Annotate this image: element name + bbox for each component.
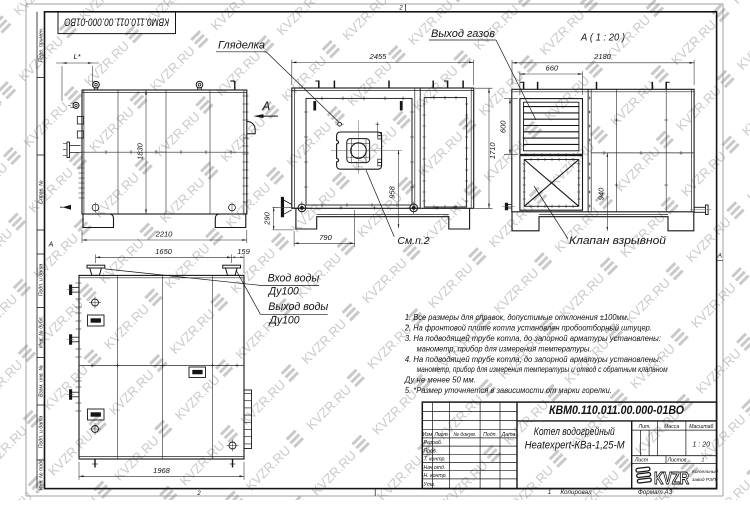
svg-text:600: 600 [498, 120, 507, 133]
svg-text:790: 790 [319, 233, 332, 242]
svg-text:Ду100: Ду100 [268, 314, 301, 326]
svg-text:КВМ0.110.011.00.000-01ВО: КВМ0.110.011.00.000-01ВО [64, 16, 169, 28]
svg-text:КВМ0.110.011.00.000-01ВО: КВМ0.110.011.00.000-01ВО [549, 404, 684, 417]
svg-text:Масштаб: Масштаб [689, 424, 714, 430]
svg-text:Подп. и дата: Подп. и дата [39, 416, 45, 449]
svg-text:2180: 2180 [593, 52, 612, 61]
svg-text:Справ. №: Справ. № [39, 180, 45, 204]
svg-text:Котельный: Котельный [692, 468, 718, 475]
svg-text:Пров.: Пров. [424, 448, 438, 454]
svg-text:L*: L* [73, 52, 81, 61]
svg-text:2455: 2455 [369, 52, 388, 61]
svg-text:958: 958 [388, 185, 397, 198]
svg-text:2: 2 [196, 491, 201, 497]
svg-text:5. *Размер уточняется в зависи: 5. *Размер уточняется в зависимости от м… [405, 386, 612, 395]
svg-text:940: 940 [596, 187, 605, 200]
svg-text:А: А [48, 242, 54, 249]
svg-text:Инв. № подл.: Инв. № подл. [39, 458, 45, 490]
svg-text:1650: 1650 [155, 247, 173, 256]
svg-text:4. На подводящей трубе котла,: 4. На подводящей трубе котла, до запорно… [405, 355, 661, 364]
svg-text:Лист: Лист [433, 432, 448, 438]
svg-text:Котел водогрейный: Котел водогрейный [534, 426, 615, 438]
svg-text:Утв.: Утв. [424, 482, 436, 488]
svg-text:1: 1 [548, 490, 551, 496]
svg-text:159: 159 [237, 247, 250, 256]
svg-text:Взам. инв. №: Взам. инв. № [39, 365, 45, 397]
svg-text:А: А [261, 101, 270, 113]
svg-text:1710: 1710 [488, 142, 497, 160]
svg-text:Формат А3: Формат А3 [638, 489, 673, 496]
svg-text:2: 2 [398, 6, 403, 12]
svg-text:А ( 1 : 20 ): А ( 1 : 20 ) [580, 33, 625, 44]
svg-text:Вход воды: Вход воды [268, 272, 320, 284]
svg-text:Выход газов: Выход газов [431, 28, 495, 40]
svg-text:Н. контр.: Н. контр. [424, 473, 447, 479]
svg-text:Нач.отд.: Нач.отд. [424, 465, 446, 471]
svg-text:Подп.: Подп. [483, 432, 497, 438]
svg-text:№ докум.: № докум. [453, 432, 476, 438]
svg-text:1830: 1830 [135, 142, 144, 160]
svg-text:Ду не менее 50 мм.: Ду не менее 50 мм. [404, 376, 476, 385]
svg-text:Ду100: Ду100 [267, 286, 300, 298]
svg-text:Листов: Листов [667, 458, 687, 464]
svg-text:Дата: Дата [501, 432, 516, 438]
svg-text:2. На фронтовой плите котла ус: 2. На фронтовой плите котла установлен п… [404, 324, 652, 333]
svg-text:Клапан взрывной: Клапан взрывной [569, 235, 666, 247]
svg-text:Т. контр.: Т. контр. [424, 457, 446, 463]
svg-text:1 : 20: 1 : 20 [693, 441, 711, 448]
svg-text:2210: 2210 [155, 229, 174, 238]
svg-text:А: А [717, 253, 722, 260]
svg-text:Разраб.: Разраб. [424, 440, 443, 446]
svg-text:Масса: Масса [664, 424, 679, 430]
svg-text:Инв. № дубл.: Инв. № дубл. [39, 316, 45, 348]
svg-text:3. На подводящей трубе котла,: 3. На подводящей трубе котла, до запорно… [405, 334, 661, 343]
svg-text:завод РЭП: завод РЭП [691, 477, 716, 483]
svg-text:Гляделка: Гляделка [218, 40, 265, 52]
svg-text:манометр, прибор для измерения: манометр, прибор для измерения температу… [417, 344, 592, 353]
svg-text:660: 660 [546, 64, 559, 73]
svg-text:См.п.2: См.п.2 [397, 235, 429, 247]
svg-text:1. Все размеры для справок, до: 1. Все размеры для справок, допустимые о… [405, 313, 629, 322]
svg-text:манометр, прибор для измерения: манометр, прибор для измерения температу… [417, 365, 669, 374]
svg-text:1968: 1968 [153, 466, 171, 475]
svg-text:Подп. и дата: Подп. и дата [39, 264, 45, 297]
svg-text:1: 1 [702, 458, 705, 464]
svg-text:Выход воды: Выход воды [268, 301, 329, 313]
svg-text:Изм: Изм [423, 432, 433, 438]
svg-text:Копировал: Копировал [560, 489, 592, 496]
svg-text:290: 290 [263, 211, 272, 225]
svg-text:Heatexpert-КВа-1,25-М: Heatexpert-КВа-1,25-М [525, 440, 625, 452]
svg-text:Лит.: Лит. [638, 424, 651, 430]
svg-text:Лист: Лист [634, 458, 649, 464]
svg-text:KVZR: KVZR [654, 468, 689, 488]
svg-text:Перв. примен.: Перв. примен. [39, 28, 45, 62]
